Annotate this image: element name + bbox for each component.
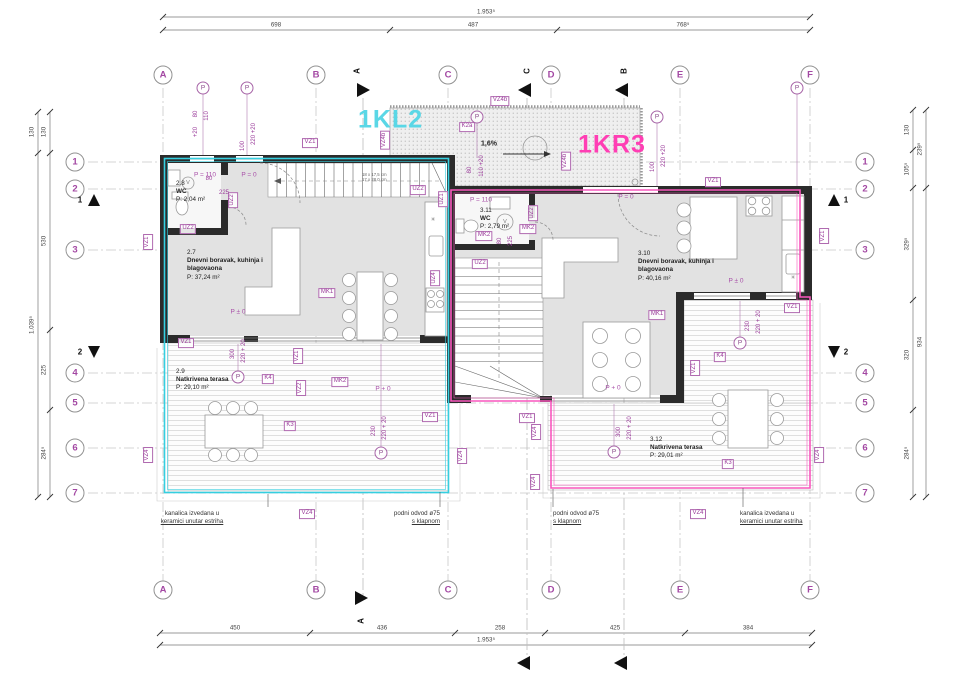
small-dimension: 220 + 20 (241, 339, 247, 363)
room-label-3.10: 3.10Dnevni boravak, kuhinja iblagovaonaP… (638, 250, 714, 283)
slope-label: 1,6% (481, 141, 497, 148)
material-tag-vz1: VZ1 (143, 234, 153, 250)
material-tag-vz1: VZ1 (519, 413, 535, 423)
grid-bubble-col-E-bottom: E (671, 581, 690, 600)
level-mark: P ± 0 (230, 309, 245, 316)
drain-note-line: s klapnom (394, 518, 440, 526)
level-mark: P = 110 (194, 172, 216, 179)
room-name: WC (480, 215, 509, 223)
stairs-right-unit (455, 258, 543, 398)
material-tag-vz1: VZ1 (178, 338, 194, 348)
grid-bubble-row-6: 6 (66, 439, 85, 458)
grid-bubble-col-E: E (671, 66, 690, 85)
grid-bubble-row-6-right: 6 (856, 439, 875, 458)
dimension-label: 934 (917, 337, 924, 347)
grid-bubble-col-C: C (439, 66, 458, 85)
dimension-label: 425 (610, 625, 620, 632)
p-marker: P (375, 447, 388, 460)
room-label-3.12: 3.12Natkrivena terasaP: 29,01 m² (650, 436, 703, 461)
material-tag-uz2: UZ2 (228, 192, 238, 208)
room-name: WC (176, 188, 205, 196)
grid-bubble-row-7: 7 (66, 484, 85, 503)
material-tag-vz1: VZ1 (819, 228, 829, 244)
room-number: 2.7 (187, 249, 263, 257)
p-marker: P (241, 82, 254, 95)
room-area: P: 29,10 m² (176, 384, 229, 392)
dimension-label: 284⁵ (41, 447, 48, 460)
p-marker: P (791, 82, 804, 95)
small-dimension: 220 + 20 (627, 416, 633, 440)
room-number: 3.10 (638, 250, 714, 258)
fixture-symbol: ✳ (791, 275, 796, 281)
room-number: 2.9 (176, 368, 229, 376)
material-tag-k3: K3 (722, 459, 734, 469)
grid-bubble-row-4-right: 4 (856, 364, 875, 383)
material-tag-uz2: UZ2 (472, 259, 488, 269)
room-name: Natkrivena terasa (650, 444, 703, 452)
grid-bubble-col-D: D (542, 66, 561, 85)
small-dimension: 110 +20 (479, 155, 485, 176)
room-name: Dnevni boravak, kuhinja i (187, 257, 263, 265)
dimension-label: 320 (904, 350, 911, 360)
room-area: P: 29,01 m² (650, 452, 703, 460)
grid-bubble-row-1-right: 1 (856, 153, 875, 172)
room-name: Dnevni boravak, kuhinja i (638, 258, 714, 266)
material-tag-k4: K4 (714, 352, 726, 362)
small-dimension: 220 + 20 (756, 310, 762, 334)
dimension-label: 436 (377, 625, 387, 632)
material-tag-vz4b: VZ4b (490, 96, 509, 106)
p-marker: P (471, 111, 484, 124)
grid-bubble-row-4: 4 (66, 364, 85, 383)
small-dimension: 80 (497, 238, 503, 245)
level-mark: P = 0 (618, 194, 633, 201)
dimension-label: 384 (743, 625, 753, 632)
material-tag-vz4: VZ4 (457, 448, 467, 464)
grid-bubble-col-B: B (307, 66, 326, 85)
room-number: 3.11 (480, 207, 509, 215)
material-tag-uz2: UZ2 (180, 224, 196, 234)
unit-code-right: 1KR3 (578, 131, 646, 160)
material-tag-k4: K4 (262, 374, 274, 384)
grid-bubble-col-C-bottom: C (439, 581, 458, 600)
small-dimension: 100 (650, 162, 656, 172)
grid-bubble-row-5-right: 5 (856, 394, 875, 413)
p-marker: P (232, 371, 245, 384)
section-letter: 2 (78, 348, 82, 357)
material-tag-vz1: VZ1 (302, 138, 318, 148)
small-dimension: 220 +20 (661, 145, 667, 167)
small-dimension: +20 (193, 127, 199, 137)
dimension-label: 225 (41, 365, 48, 375)
material-tag-mk1: MK1 (318, 288, 335, 298)
dimension-label: 284⁵ (904, 447, 911, 460)
room-number: 2.8 (176, 180, 205, 188)
p-marker: P (608, 446, 621, 459)
level-mark: P ± 0 (728, 278, 743, 285)
small-dimension: 80 (193, 111, 199, 118)
room-number: 3.12 (650, 436, 703, 444)
grid-bubble-col-D-bottom: D (542, 581, 561, 600)
unit-code-left: 1KL2 (358, 106, 423, 135)
dimension-label: 1.953⁵ (477, 9, 495, 16)
level-mark: P + 0 (605, 385, 620, 392)
dimension-label: 130 (29, 127, 36, 137)
section-letter: 1 (78, 196, 82, 205)
room-label-2.9: 2.9Natkrivena terasaP: 29,10 m² (176, 368, 229, 393)
p-marker: P (651, 111, 664, 124)
level-mark: P + 0 (375, 386, 390, 393)
drain-note: podni odvod ø75s klapnom (553, 510, 599, 527)
grid-bubble-col-F: F (801, 66, 820, 85)
room-area: P: 40,16 m² (638, 275, 714, 283)
grid-bubble-col-F-bottom: F (801, 581, 820, 600)
small-dimension: 225 (219, 190, 229, 196)
small-dimension: 230 (745, 321, 751, 331)
drain-note: kanalica izvedana ukeramici unutar estri… (161, 510, 224, 527)
section-letter: A (353, 68, 362, 74)
material-tag-uz2: UZ2 (528, 205, 538, 221)
dimension-label: 258 (495, 625, 505, 632)
small-dimension: 100 (240, 141, 246, 151)
dimension-label: 130 (41, 127, 48, 137)
p-marker: P (197, 82, 210, 95)
drain-note-line: keramici unutar estriha (161, 518, 224, 526)
grid-bubble-row-3: 3 (66, 241, 85, 260)
room-name: blagovaona (187, 265, 263, 273)
material-tag-vz4: VZ4 (299, 509, 315, 519)
material-tag-vz4: VZ4 (531, 424, 541, 440)
small-dimension: 110 (204, 111, 210, 121)
dimension-label: 768⁵ (677, 22, 690, 29)
section-letter: 2 (844, 348, 848, 357)
section-letter: A (357, 618, 366, 624)
stair-note: 18 x 17,5 cm17 x 28,0 cm (362, 172, 387, 182)
material-tag-vz1: VZ1 (293, 348, 303, 364)
dimension-label: 239⁵ (917, 143, 924, 156)
room-label-2.8: 2.8WCP: 2,04 m² (176, 180, 205, 205)
dimension-label: 487 (468, 22, 478, 29)
material-tag-uz1: UZ1 (438, 191, 448, 207)
grid-bubble-col-A: A (154, 66, 173, 85)
small-dimension: 220 +20 (251, 123, 257, 145)
drain-note-line: kanalica izvedana u (740, 510, 803, 518)
drain-note-line: kanalica izvedana u (161, 510, 224, 518)
dimension-label: 1.039⁵ (29, 316, 36, 334)
material-tag-uz4: UZ4 (430, 270, 440, 286)
room-area: P: 2,04 m² (176, 196, 205, 204)
room-label-2.7: 2.7Dnevni boravak, kuhinja iblagovaonaP:… (187, 249, 263, 282)
grid-bubble-row-1: 1 (66, 153, 85, 172)
small-dimension: 220 + 20 (382, 416, 388, 440)
dimension-label: 329⁵ (904, 238, 911, 251)
material-tag-vz1: VZ1 (705, 177, 721, 187)
section-letter: C (523, 68, 532, 74)
drain-note-line: podni odvod ø75 (394, 510, 440, 518)
dimension-label: 530 (41, 236, 48, 246)
dimension-label: 1.953⁵ (477, 637, 495, 644)
material-tag-mk2: MK2 (331, 377, 348, 387)
drain-note-line: s klapnom (553, 518, 599, 526)
small-dimension: 300 (230, 349, 236, 359)
room-name: Natkrivena terasa (176, 376, 229, 384)
section-letter: 1 (844, 196, 848, 205)
material-tag-vz1: VZ1 (690, 360, 700, 376)
room-area: P: 37,24 m² (187, 274, 263, 282)
small-dimension: 80 (467, 167, 473, 174)
small-dimension: 300 (616, 427, 622, 437)
drain-note: kanalica izvedana ukeramici unutar estri… (740, 510, 803, 527)
dimension-label: 450 (230, 625, 240, 632)
material-tag-vz4: VZ4 (814, 447, 824, 463)
small-dimension: 230 (371, 426, 377, 436)
material-tag-k3: K3 (284, 421, 296, 431)
material-tag-k2a: K2a (459, 122, 475, 132)
room-label-3.11: 3.11WCP: 2,79 m² (480, 207, 509, 232)
drain-note-line: podni odvod ø75 (553, 510, 599, 518)
material-tag-vz2: VZ2 (296, 380, 306, 396)
grid-bubble-col-B-bottom: B (307, 581, 326, 600)
grid-bubble-row-3-right: 3 (856, 241, 875, 260)
material-tag-vz4: VZ4 (143, 447, 153, 463)
material-tag-mk2: MK2 (519, 224, 536, 234)
room-area: P: 2,79 m² (480, 223, 509, 231)
grid-bubble-row-5: 5 (66, 394, 85, 413)
small-dimension: 225 (508, 236, 514, 246)
p-marker: P (734, 337, 747, 350)
material-tag-vz4b: VZ4b (380, 130, 390, 149)
dimension-label: 105⁵ (904, 163, 911, 176)
material-tag-uz2: UZ2 (410, 185, 426, 195)
material-tag-vz4: VZ4 (690, 509, 706, 519)
grid-bubble-col-A-bottom: A (154, 581, 173, 600)
plan-drawing (0, 0, 960, 679)
material-tag-mk2: MK2 (475, 231, 492, 241)
material-tag-mk1: MK1 (648, 310, 665, 320)
stair-dim-text: 17 x 28,0 cm (362, 177, 387, 182)
fixture-symbol: ✳ (431, 217, 436, 223)
grid-bubble-row-7-right: 7 (856, 484, 875, 503)
drain-note-line: keramici unutar estriha (740, 518, 803, 526)
material-tag-vz1: VZ1 (422, 412, 438, 422)
room-name: blagovaona (638, 266, 714, 274)
level-mark: P = 110 (470, 197, 492, 204)
material-tag-vz1: VZ1 (784, 303, 800, 313)
level-mark: P = 0 (241, 172, 256, 179)
section-letter: B (620, 68, 629, 74)
drain-note: podni odvod ø75s klapnom (394, 510, 440, 527)
material-tag-vz4b: VZ4b (561, 151, 571, 170)
floor-plan-sheet: 1KL2 1KR3 AABBCCDDEEFF112233445566771.95… (0, 0, 960, 679)
material-tag-vz4: VZ4 (530, 474, 540, 490)
dimension-label: 698 (271, 22, 281, 29)
dimension-label: 130 (904, 125, 911, 135)
grid-bubble-row-2-right: 2 (856, 180, 875, 199)
